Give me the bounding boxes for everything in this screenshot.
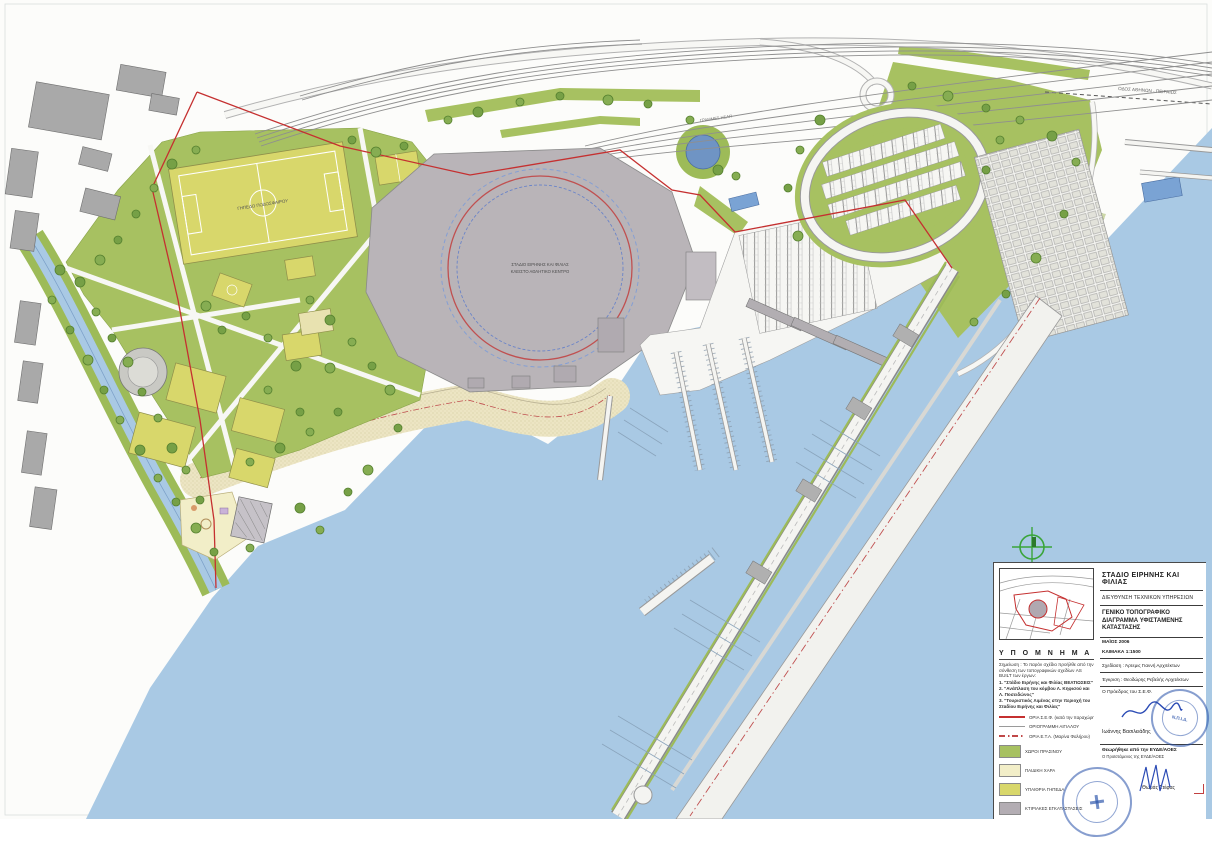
drawing-title: ΓΕΝΙΚΟ ΤΟΠΟΓΡΑΦΙΚΟ ΔΙΑΓΡΑΜΜΑ ΥΦΙΣΤΑΜΕΝΗΣ… — [1100, 606, 1203, 638]
legend-area-item: ΚΤΙΡΙΑΚΕΣ ΕΓΚΑΤΑΣΤΑΣΕΙΣ — [999, 802, 1094, 815]
project-title: ΣΤΑΔΙΟ ΕΙΡΗΝΗΣ ΚΑΙ ΦΙΛΙΑΣ — [1100, 568, 1203, 591]
legend-line-item: ΟΡΙΟΓΡΑΜΜΗ ΑΙΓΙΑΛΟΥ — [999, 724, 1094, 729]
legend-area-item: ΠΑΙΔΙΚΗ ΧΑΡΑ — [999, 764, 1094, 777]
president-signature-block: Ο Πρόεδρος του Σ.Ε.Φ. Ιωάννης Βασιλειάδη… — [1100, 687, 1203, 745]
legend-note-item: 2. "Ανάπλαση του κόμβου Λ. Κηφισού και Λ… — [999, 686, 1094, 698]
drawing-sheet: ΣΤΑΔΙΟ ΕΙΡΗΝΗΣ ΚΑΙ ΦΙΛΙΑΣ ΚΛΕΙΣΤΟ ΑΘΛΗΤΙ… — [0, 0, 1212, 819]
svg-text:ΚΛΕΙΣΤΟ ΑΘΛΗΤΙΚΟ ΚΕΝΤΡΟ: ΚΛΕΙΣΤΟ ΑΘΛΗΤΙΚΟ ΚΕΝΤΡΟ — [511, 269, 570, 274]
reviewed-label: Θεωρήθηκε από την ΕΥΔΕ/ΑΟΕΣ — [1102, 748, 1201, 753]
sef-boundary-line-sample — [999, 716, 1025, 718]
location-minimap — [999, 568, 1094, 640]
title-block: Υ Π Ο Μ Ν Η Μ Α Σημείωση : Το παρόν σχέδ… — [993, 562, 1206, 819]
legend-area-item: ΧΩΡΟΙ ΠΡΑΣΙΝΟΥ — [999, 745, 1094, 758]
title-block-right-column: ΣΤΑΔΙΟ ΕΙΡΗΝΗΣ ΚΑΙ ΦΙΛΙΑΣ ΔΙΕΥΘΥΝΣΗ ΤΕΧΝ… — [1100, 568, 1203, 819]
president-label: Ο Πρόεδρος του Σ.Ε.Φ. — [1102, 690, 1201, 695]
svg-text:ΣΤΑΔΙΟ ΕΙΡΗΝΗΣ ΚΑΙ ΦΙΛΙΑΣ: ΣΤΑΔΙΟ ΕΙΡΗΝΗΣ ΚΑΙ ΦΙΛΙΑΣ — [511, 262, 569, 267]
drawing-scale: ΚΛΙΜΑΚΑ 1:1500 — [1100, 648, 1203, 659]
reviewed-sub-label: Ο Προϊστάμενος της ΕΥΔΕ/ΑΟΕΣ — [1102, 754, 1201, 759]
shoreline-line-sample — [999, 726, 1025, 727]
title-block-left-column: Υ Π Ο Μ Ν Η Μ Α Σημείωση : Το παρόν σχέδ… — [999, 568, 1094, 819]
president-name: Ιωάννης Βασιλειάδης — [1102, 729, 1201, 735]
legend-line-item: ΟΡΙΑ Ε.Τ.Α. (Μαρίνα Φαλήρου) — [999, 734, 1094, 739]
playground-swatch — [999, 764, 1021, 777]
buildings-swatch — [999, 802, 1021, 815]
legend-line-item: ΟΡΙΑ Σ.Ε.Φ. (κατά την παραχώρηση) — [999, 715, 1094, 720]
legend-note: Σημείωση : Το παρόν σχέδιο προήλθε από τ… — [999, 662, 1094, 679]
review-signature-block: Θεωρήθηκε από την ΕΥΔΕ/ΑΟΕΣ Ο Προϊστάμεν… — [1100, 745, 1203, 791]
eta-boundary-line-sample — [999, 735, 1025, 737]
department: ΔΙΕΥΘΥΝΣΗ ΤΕΧΝΙΚΩΝ ΥΠΗΡΕΣΙΩΝ — [1100, 591, 1203, 606]
drawing-date: ΜΑΪΟΣ 2006 — [1100, 638, 1203, 648]
approval-credit: Έγκριση : Θεοδώρης Ρεβελής Αρχιτέκτων — [1100, 673, 1203, 687]
legend-note-item: 3. "Τουριστικός Λιμένας στην περιοχή του… — [999, 698, 1094, 710]
sheet-corner-mark — [1194, 784, 1204, 794]
green-areas-swatch — [999, 745, 1021, 758]
reviewer-signature — [1134, 761, 1180, 797]
president-signature — [1118, 699, 1184, 725]
legend-heading: Υ Π Ο Μ Ν Η Μ Α — [999, 650, 1094, 660]
open-courts-swatch — [999, 783, 1021, 796]
drafting-credit: Σχεδίαση : Άρτεμις Γιαννή Αρχιτέκτων — [1100, 659, 1203, 673]
legend-area-item: ΥΠΑΙΘΡΙΑ ΓΗΠΕΔΑ — [999, 783, 1094, 796]
